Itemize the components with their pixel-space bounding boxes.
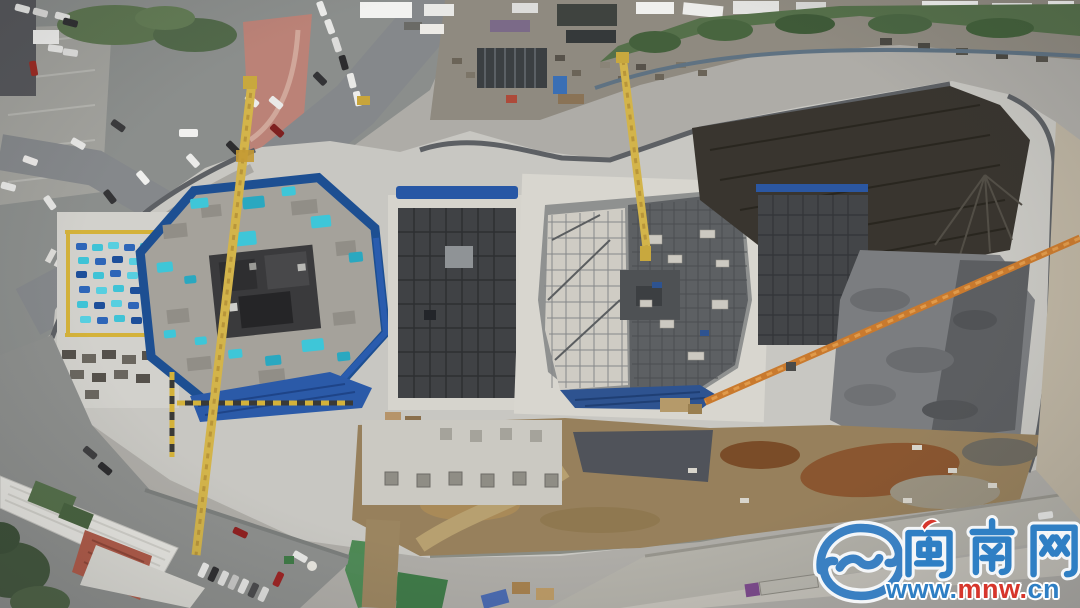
yellow-loader — [357, 96, 370, 105]
footing-pads — [362, 420, 562, 505]
scaffold-pile — [362, 519, 401, 608]
gray-slab-southeast — [830, 250, 1035, 455]
formwork-deck-white — [545, 208, 628, 390]
pallets — [512, 582, 530, 594]
red-machine — [506, 95, 517, 103]
purple-material — [490, 20, 530, 32]
white-van — [179, 129, 198, 137]
crane-cab — [243, 76, 257, 89]
url-mnw: mnw. — [958, 574, 1028, 604]
url-www: www. — [886, 574, 958, 604]
site-name-glyphs — [900, 510, 1080, 582]
watermark-url: www.mnw.cn — [886, 574, 1060, 605]
aerial-construction-site-photo: 闽南网 www.mnw.cn — [0, 0, 1080, 608]
url-cn: cn — [1028, 574, 1061, 604]
crane-hook-block — [640, 246, 651, 261]
dump-truck — [558, 94, 584, 104]
rooftop-topleft — [0, 0, 36, 96]
dark-deck-west — [388, 186, 528, 410]
dark-material-stack — [477, 48, 547, 88]
blue-equipment — [553, 76, 567, 94]
green-dumpster — [284, 556, 294, 564]
blue-tarp — [481, 589, 510, 608]
